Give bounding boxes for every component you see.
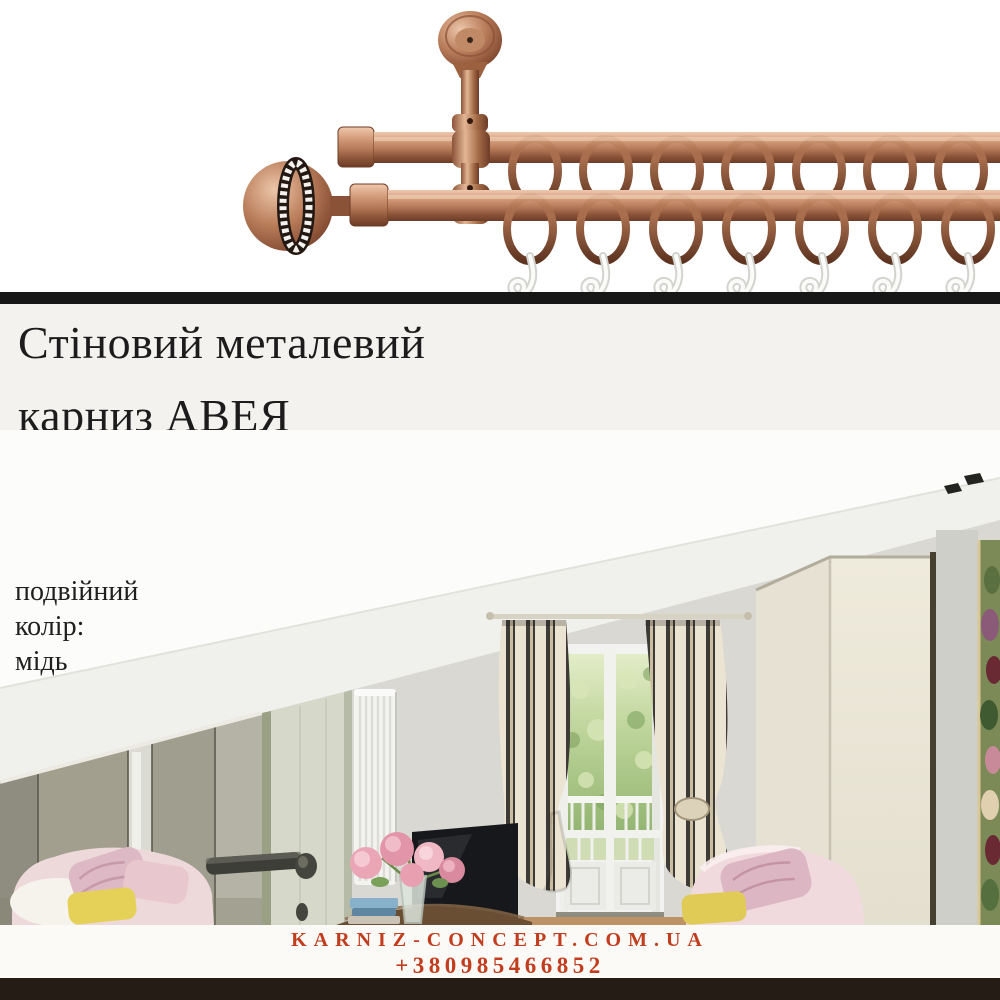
product-specs: подвійний колір: мідь bbox=[15, 574, 138, 679]
book-stack bbox=[348, 898, 400, 924]
product-photo-section bbox=[0, 0, 1000, 292]
curtain-rod-product-image bbox=[0, 0, 1000, 292]
headline-line-1: Стіновий металевий bbox=[18, 306, 514, 379]
footer-bottom-bar bbox=[0, 978, 1000, 1000]
spec-line-color-value: мідь bbox=[15, 644, 138, 679]
divider-bar bbox=[0, 292, 1000, 304]
ceiling-bracket bbox=[438, 11, 502, 132]
curtain-tieback-knot bbox=[675, 798, 709, 820]
right-wall bbox=[936, 530, 978, 925]
phone-number: +380985466852 bbox=[0, 953, 1000, 979]
wardrobe-side-shadow bbox=[930, 552, 936, 925]
spec-line-type: подвійний bbox=[15, 574, 138, 609]
website-url: KARNIZ-CONCEPT.COM.UA bbox=[0, 929, 1000, 952]
footer: KARNIZ-CONCEPT.COM.UA +380985466852 bbox=[0, 925, 1000, 978]
ad-poster: Стіновий металевий карниз АВЕЯ класична … bbox=[0, 0, 1000, 1000]
room-photo-section bbox=[0, 430, 1000, 925]
interior-room-image bbox=[0, 430, 1000, 925]
spec-line-color-label: колір: bbox=[15, 609, 138, 644]
floral-art-strip bbox=[978, 540, 1000, 925]
